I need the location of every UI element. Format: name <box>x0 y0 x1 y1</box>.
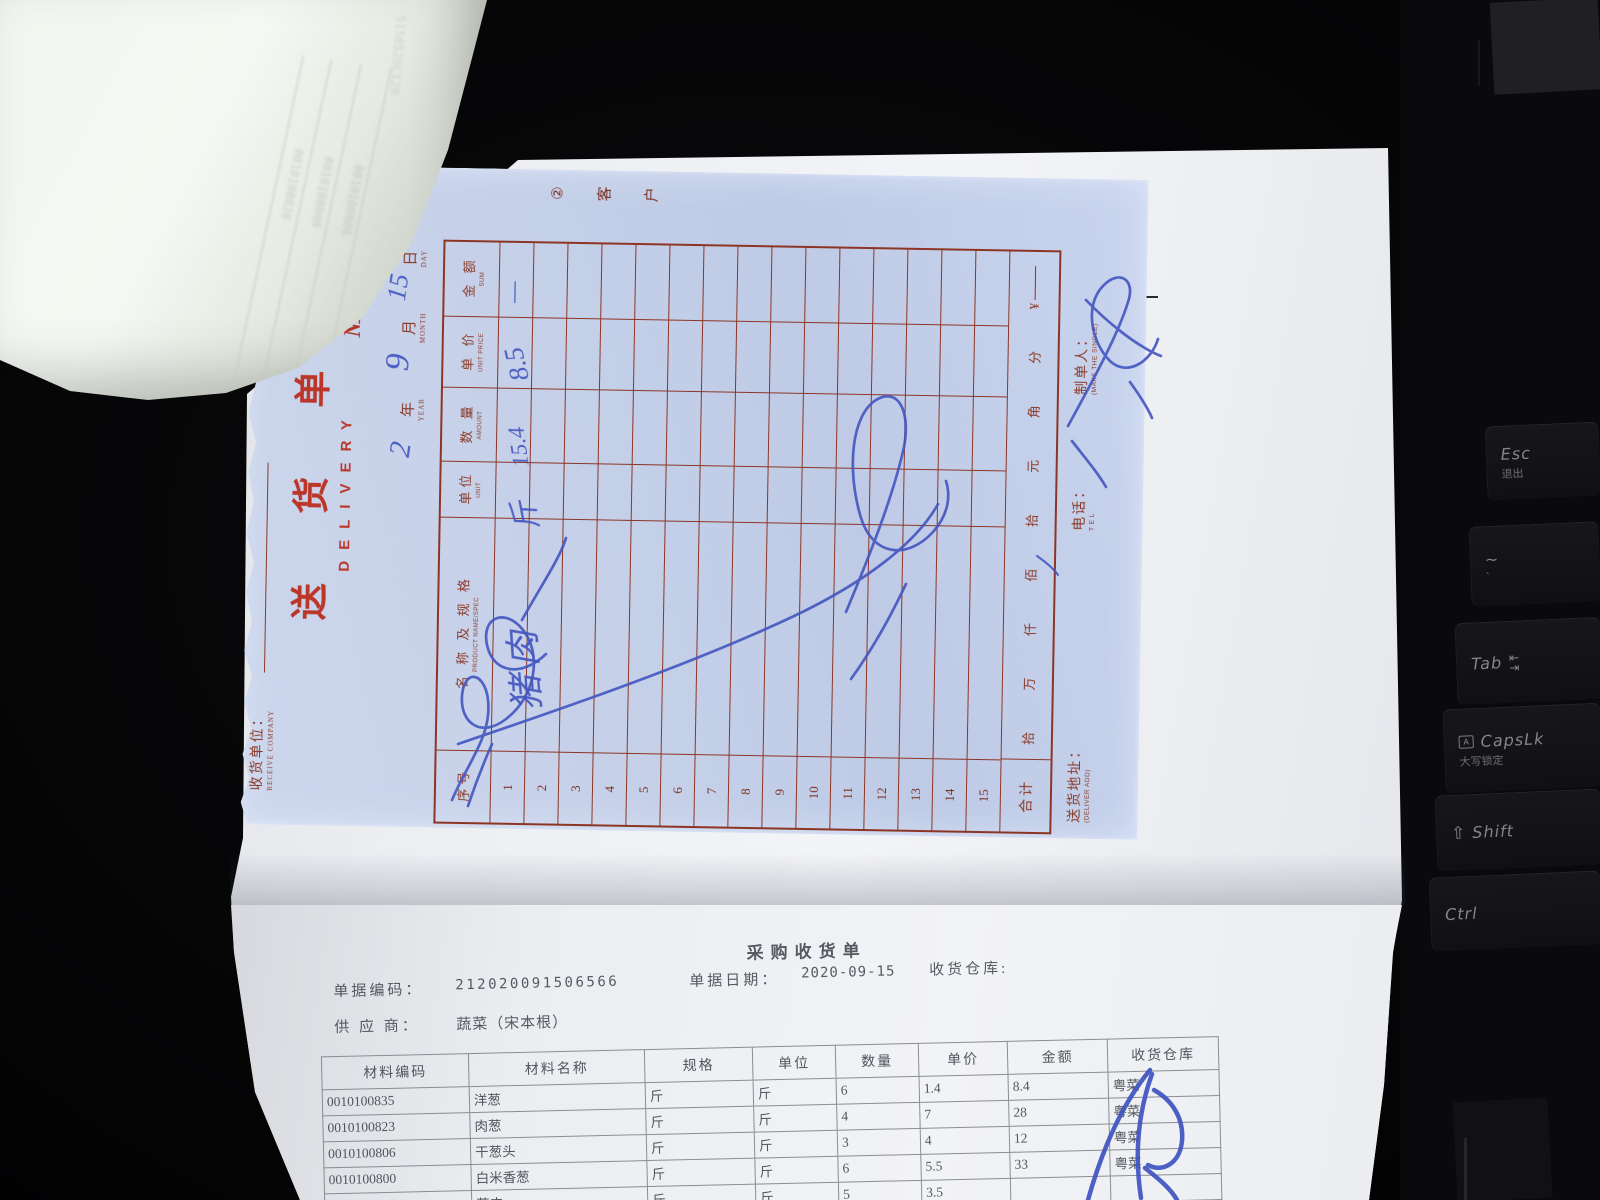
receipt-cell: 5 <box>838 1180 922 1200</box>
empty-cell <box>666 465 700 521</box>
doc-date-label: 单据日期： <box>689 968 779 991</box>
receipt-cell: 12 <box>1009 1124 1110 1152</box>
receipt-cell: 0010100806 <box>323 1139 471 1168</box>
empty-cell <box>771 247 805 321</box>
empty-cell <box>866 524 903 758</box>
empty-cell <box>803 393 837 467</box>
row-number: 5 <box>626 753 660 825</box>
empty-cell <box>566 318 600 390</box>
row-number: 13 <box>898 758 932 830</box>
empty-cell <box>736 320 770 392</box>
receipt-column-header: 材料编码 <box>321 1054 469 1090</box>
key-esc: Esc退出 <box>1484 422 1600 501</box>
paper-fold-shadow <box>230 853 1405 905</box>
empty-cell <box>737 247 771 321</box>
empty-cell <box>972 470 1006 526</box>
keyboard: Esc退出~`Tab⇤⇥ACapsLk大写锁定⇧ShiftCtrl <box>1400 0 1600 1200</box>
empty-cell <box>634 319 668 391</box>
doc-date-value: 2020-09-15 <box>801 963 896 981</box>
empty-cell <box>872 323 906 395</box>
empty-cell <box>667 391 701 465</box>
empty-cell <box>798 523 835 757</box>
receipt-cell: 干葱头 <box>470 1135 647 1165</box>
empty-cell <box>769 393 803 467</box>
empty-cell <box>669 246 703 320</box>
key-ctrl: Ctrl <box>1428 870 1600 951</box>
key-label: Shift <box>1472 821 1514 842</box>
receive-company-label: 收货单位： <box>250 710 266 790</box>
receipt-column-header: 单位 <box>752 1045 836 1080</box>
empty-cell <box>567 244 601 318</box>
empty-cell <box>600 318 634 390</box>
receipt-column-header: 数量 <box>835 1043 919 1078</box>
receipt-cell: 3.5 <box>921 1178 1011 1200</box>
receipt-cell: 3 <box>837 1128 921 1156</box>
key-tab: Tab⇤⇥ <box>1454 617 1600 705</box>
receipt-cell <box>1110 1174 1222 1200</box>
key-: ~` <box>1468 521 1600 607</box>
receive-company-field: 收货单位： RECEIVE COMPANY <box>246 710 275 791</box>
empty-cell <box>633 390 667 464</box>
receipt-cell: 斤 <box>754 1104 838 1132</box>
receive-company-sub: RECEIVE COMPANY <box>266 710 275 791</box>
keyboard-key-highlight <box>1478 40 1480 86</box>
key-sublabel: ` <box>1485 566 1600 584</box>
receipt-cell: 洋葱 <box>469 1083 646 1113</box>
empty-cell <box>871 395 905 469</box>
keyboard-key-partial-bottom <box>1452 1098 1552 1200</box>
receipt-cell: 粤菜 <box>1109 1122 1221 1151</box>
receive-company-line <box>264 463 269 673</box>
receipt-cell: 0010100835 <box>322 1087 470 1116</box>
row-number: 9 <box>762 756 796 828</box>
receipt-table: 材料编码材料名称规格单位数量单价金额收货仓库0010100835洋葱斤斤61.4… <box>321 1036 1222 1200</box>
receipt-cell: 粤菜 <box>1110 1148 1222 1177</box>
column-header: 序号 <box>435 750 490 823</box>
empty-cell <box>531 389 565 463</box>
key-label: Tab <box>1471 653 1503 673</box>
empty-cell <box>941 250 975 324</box>
receipt-cell: 斤 <box>646 1106 755 1134</box>
receipt-cell: 斤 <box>647 1158 756 1186</box>
handwritten-product: 猪肉 <box>493 621 551 712</box>
row-number: 1 <box>490 751 524 823</box>
copy-char-customer-2: 户 <box>640 187 661 202</box>
empty-cell <box>532 317 566 389</box>
receipt-cell: 粤菜 <box>1109 1096 1221 1125</box>
empty-cell <box>668 319 702 391</box>
photo-of-documents-on-keyboard: Esc退出~`Tab⇤⇥ACapsLk大写锁定⇧ShiftCtrl cu 收货单… <box>0 0 1600 1200</box>
amount-unit-char: 万 <box>1018 677 1037 690</box>
receipt-cell: 粤菜 <box>1108 1070 1220 1099</box>
receipt-cell: 斤 <box>646 1132 755 1160</box>
empty-cell <box>599 390 633 464</box>
note-footer: 送货地址：(DELIVER ADD) 电话：T E L 制单人：(MAKE TH… <box>1063 199 1118 824</box>
purchase-receipt-doc: 采购收货单 单据编码： 212020091506566 单据日期： 2020-0… <box>225 905 1420 1200</box>
amount-unit-char: 佰 <box>1020 568 1039 581</box>
tab-arrows-icon: ⇤⇥ <box>1509 652 1520 672</box>
key-label: Esc <box>1500 444 1531 464</box>
empty-cell <box>734 466 768 522</box>
caps-lock-icon: A <box>1458 735 1474 749</box>
receipt-column-header: 金额 <box>1007 1039 1108 1074</box>
empty-cell <box>662 521 699 755</box>
maker-field: 制单人：(MAKE THE SINGLE) <box>1071 323 1099 395</box>
show-through-code: 0010100820 <box>278 147 306 221</box>
empty-cell <box>565 389 599 463</box>
empty-cell <box>533 243 567 317</box>
amount-unit-char: 分 <box>1024 351 1043 364</box>
empty-cell <box>635 245 669 319</box>
copy-stamp: ② 客 户 <box>548 185 661 202</box>
empty-cell <box>836 468 870 524</box>
receipt-cell: 斤 <box>755 1182 839 1200</box>
empty-cell <box>839 249 873 323</box>
doc-code-value: 212020091506566 <box>455 974 619 994</box>
key-label: CapsLk <box>1480 729 1544 751</box>
amount-unit-char: 拾 <box>1021 514 1040 527</box>
handwritten-month: 9 <box>379 352 418 372</box>
empty-cell <box>907 250 941 324</box>
handwritten-year: 2 <box>383 439 419 459</box>
keyboard-key-highlight <box>1464 1138 1467 1200</box>
shift-arrow-icon: ⇧ <box>1451 823 1466 844</box>
receipt-cell: 斤 <box>645 1080 754 1108</box>
empty-cell <box>939 396 973 470</box>
row-number: 15 <box>966 759 1000 831</box>
receipt-cell: 6 <box>836 1076 920 1104</box>
key-sublabel: 大写锁定 <box>1459 748 1600 770</box>
empty-cell <box>900 525 937 759</box>
receipt-cell: 斤 <box>754 1130 838 1158</box>
copy-char-customer-1: 客 <box>593 186 614 201</box>
empty-cell <box>906 323 940 395</box>
deliver-address-field: 送货地址：(DELIVER ADD) <box>1063 743 1091 823</box>
empty-cell <box>805 248 839 322</box>
column-header: 数 量AMOUNT <box>442 387 497 462</box>
column-header: 金 额SUM <box>444 242 499 317</box>
empty-cell <box>601 244 635 318</box>
empty-cell <box>768 467 802 523</box>
tel-field: 电话：T E L <box>1069 483 1097 531</box>
empty-cell <box>764 522 801 756</box>
empty-cell <box>499 243 533 317</box>
receipt-cell: 6 <box>838 1154 922 1182</box>
receipt-cell: 8.4 <box>1008 1072 1109 1100</box>
empty-cell <box>735 392 769 466</box>
row-number: 6 <box>660 754 694 826</box>
receipt-cell: 斤 <box>753 1078 837 1106</box>
empty-cell <box>975 251 1009 325</box>
total-row: 合计 拾万仟佰拾元角分¥ <box>1000 252 1060 833</box>
key-shift: ⇧Shift <box>1434 788 1600 871</box>
receipt-cell: 斤 <box>647 1184 756 1200</box>
column-header: 单位UNIT <box>441 461 496 518</box>
empty-cell <box>974 325 1008 397</box>
receipt-column-header: 收货仓库 <box>1107 1037 1219 1073</box>
empty-cell <box>804 322 838 394</box>
empty-cell <box>632 464 666 520</box>
empty-cell <box>905 395 939 469</box>
row-number: 7 <box>694 754 728 826</box>
empty-cell <box>870 468 904 524</box>
show-through-diagonal-code: 5150520C120 <box>387 15 408 95</box>
empty-cell <box>838 322 872 394</box>
amount-unit-char: 元 <box>1022 460 1041 473</box>
empty-cell <box>700 465 734 521</box>
amount-unit-char: 拾 <box>1017 732 1036 745</box>
empty-cell <box>628 520 665 754</box>
date-month: 月MONTH <box>398 312 428 343</box>
empty-cell <box>968 526 1005 760</box>
empty-cell <box>730 522 767 756</box>
delivery-table-header: 序号名 称 及 规 格PRODUCT NAME/SPEC单位UNIT数 量AMO… <box>435 242 500 823</box>
receipt-column-header: 规格 <box>644 1047 753 1082</box>
receipt-cell: 0010100823 <box>323 1113 471 1142</box>
column-header: 名 称 及 规 格PRODUCT NAME/SPEC <box>437 517 495 751</box>
empty-cell <box>560 519 597 753</box>
receipt-cell: 0010100800 <box>324 1165 472 1194</box>
receipt-cell: 斤 <box>755 1156 839 1184</box>
keyboard-key-partial-top <box>1490 0 1600 95</box>
receipt-cell: 肉葱 <box>470 1109 647 1139</box>
row-number: 10 <box>796 756 830 828</box>
receipt-title: 采购收货单 <box>746 936 867 964</box>
key-label: ~ <box>1484 549 1499 569</box>
empty-cell <box>940 324 974 396</box>
delivery-table: 序号名 称 及 规 格PRODUCT NAME/SPEC单位UNIT数 量AMO… <box>433 240 1061 835</box>
row-number: 2 <box>524 751 558 823</box>
empty-cell <box>703 246 737 320</box>
delivery-table-body: 123456789101112131415 <box>490 243 1010 832</box>
empty-cell <box>594 519 631 753</box>
amount-unit-char: 仟 <box>1019 623 1038 636</box>
empty-cell <box>904 469 938 525</box>
receipt-cell: 7 <box>920 1100 1010 1128</box>
receipt-cell: 5.5 <box>921 1152 1011 1180</box>
empty-cell <box>702 320 736 392</box>
empty-cell <box>832 524 869 758</box>
key-capslk: ACapsLk大写锁定 <box>1442 703 1600 794</box>
supplier-value: 蔬菜（宋本根） <box>456 1011 568 1035</box>
currency-sign: ¥ <box>1026 266 1043 310</box>
amount-unit-char: 角 <box>1023 405 1042 418</box>
receipt-cell: 白米香葱 <box>471 1161 648 1191</box>
key-sublabel: 退出 <box>1501 462 1600 482</box>
total-label: 合计 <box>1000 758 1051 832</box>
receipt-cell: 4 <box>920 1126 1010 1154</box>
empty-cell <box>770 321 804 393</box>
empty-cell <box>973 396 1007 470</box>
empty-cell <box>802 467 836 523</box>
key-label: Ctrl <box>1445 904 1478 924</box>
receipt-cell: 4 <box>837 1102 921 1130</box>
row-number: 3 <box>558 752 592 824</box>
receipt-cell <box>1010 1176 1111 1200</box>
date-year: 年YEAR <box>396 398 425 422</box>
handwritten-sum-dash: — <box>500 281 527 303</box>
handwritten-amount: 15.4 <box>503 425 534 468</box>
column-header: 单 价UNIT PRICE <box>443 315 498 388</box>
receipt-cell: 28 <box>1009 1098 1110 1126</box>
row-number: 11 <box>830 757 864 829</box>
supplier-label: 供 应 商： <box>334 1014 420 1037</box>
receipt-column-header: 材料名称 <box>468 1050 645 1087</box>
receipt-cell: 1.4 <box>919 1074 1009 1102</box>
empty-cell <box>696 521 733 755</box>
empty-cell <box>938 470 972 526</box>
row-number: 12 <box>864 757 898 829</box>
empty-cell <box>837 394 871 468</box>
receipt-column-header: 单价 <box>918 1041 1008 1076</box>
empty-cell <box>934 525 971 759</box>
empty-cell <box>873 249 907 323</box>
empty-cell <box>564 463 598 519</box>
show-through-line <box>234 55 305 378</box>
receipt-cell: 33 <box>1010 1150 1111 1178</box>
doc-code-label: 单据编码： <box>333 978 423 1001</box>
copy-number: ② <box>548 185 567 200</box>
total-units: 拾万仟佰拾元角分¥ <box>1002 252 1061 760</box>
empty-cell <box>598 464 632 520</box>
row-number: 14 <box>932 758 966 830</box>
row-number: 4 <box>592 753 626 825</box>
row-number: 8 <box>728 755 762 827</box>
empty-cell <box>701 392 735 466</box>
doc-warehouse-label: 收货仓库: <box>929 957 1009 980</box>
